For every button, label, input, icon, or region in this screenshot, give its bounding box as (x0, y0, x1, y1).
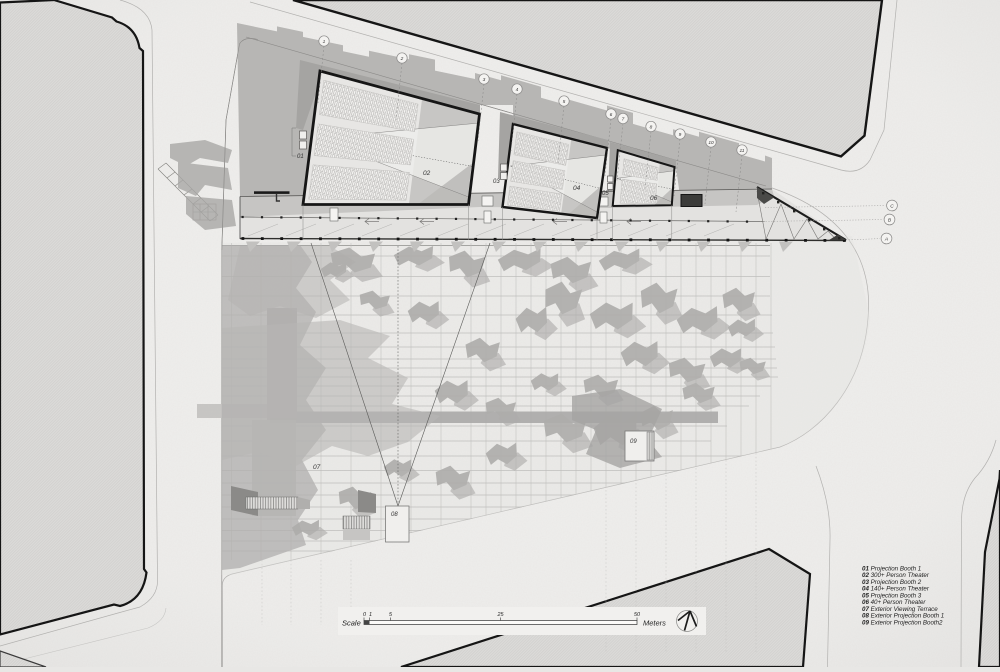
svg-text:11: 11 (740, 148, 745, 154)
svg-text:6: 6 (610, 112, 613, 118)
svg-text:C: C (890, 203, 894, 209)
svg-text:01: 01 (297, 154, 304, 160)
svg-text:03: 03 (493, 179, 500, 185)
svg-text:5: 5 (563, 99, 566, 105)
svg-text:3: 3 (483, 77, 486, 83)
svg-text:8: 8 (650, 124, 653, 130)
svg-text:9: 9 (679, 132, 682, 138)
svg-text:04: 04 (573, 185, 581, 192)
svg-text:1: 1 (323, 39, 326, 45)
svg-text:Scale: Scale (342, 619, 361, 628)
svg-text:Meters: Meters (643, 619, 666, 628)
svg-text:A: A (884, 236, 888, 242)
svg-text:25: 25 (496, 612, 504, 618)
svg-text:05: 05 (602, 191, 609, 197)
svg-text:50: 50 (634, 612, 641, 618)
svg-text:08: 08 (391, 512, 398, 518)
svg-text:07: 07 (313, 464, 321, 471)
svg-text:02: 02 (423, 170, 431, 177)
svg-text:4: 4 (516, 87, 519, 93)
svg-text:09 Exterior Projection Booth2: 09 Exterior Projection Booth2 (862, 619, 943, 626)
svg-text:10: 10 (708, 140, 714, 146)
svg-text:09: 09 (630, 439, 637, 445)
svg-text:06: 06 (650, 195, 658, 202)
svg-text:2: 2 (400, 56, 404, 62)
svg-text:1: 1 (369, 612, 372, 618)
svg-text:7: 7 (622, 116, 625, 122)
